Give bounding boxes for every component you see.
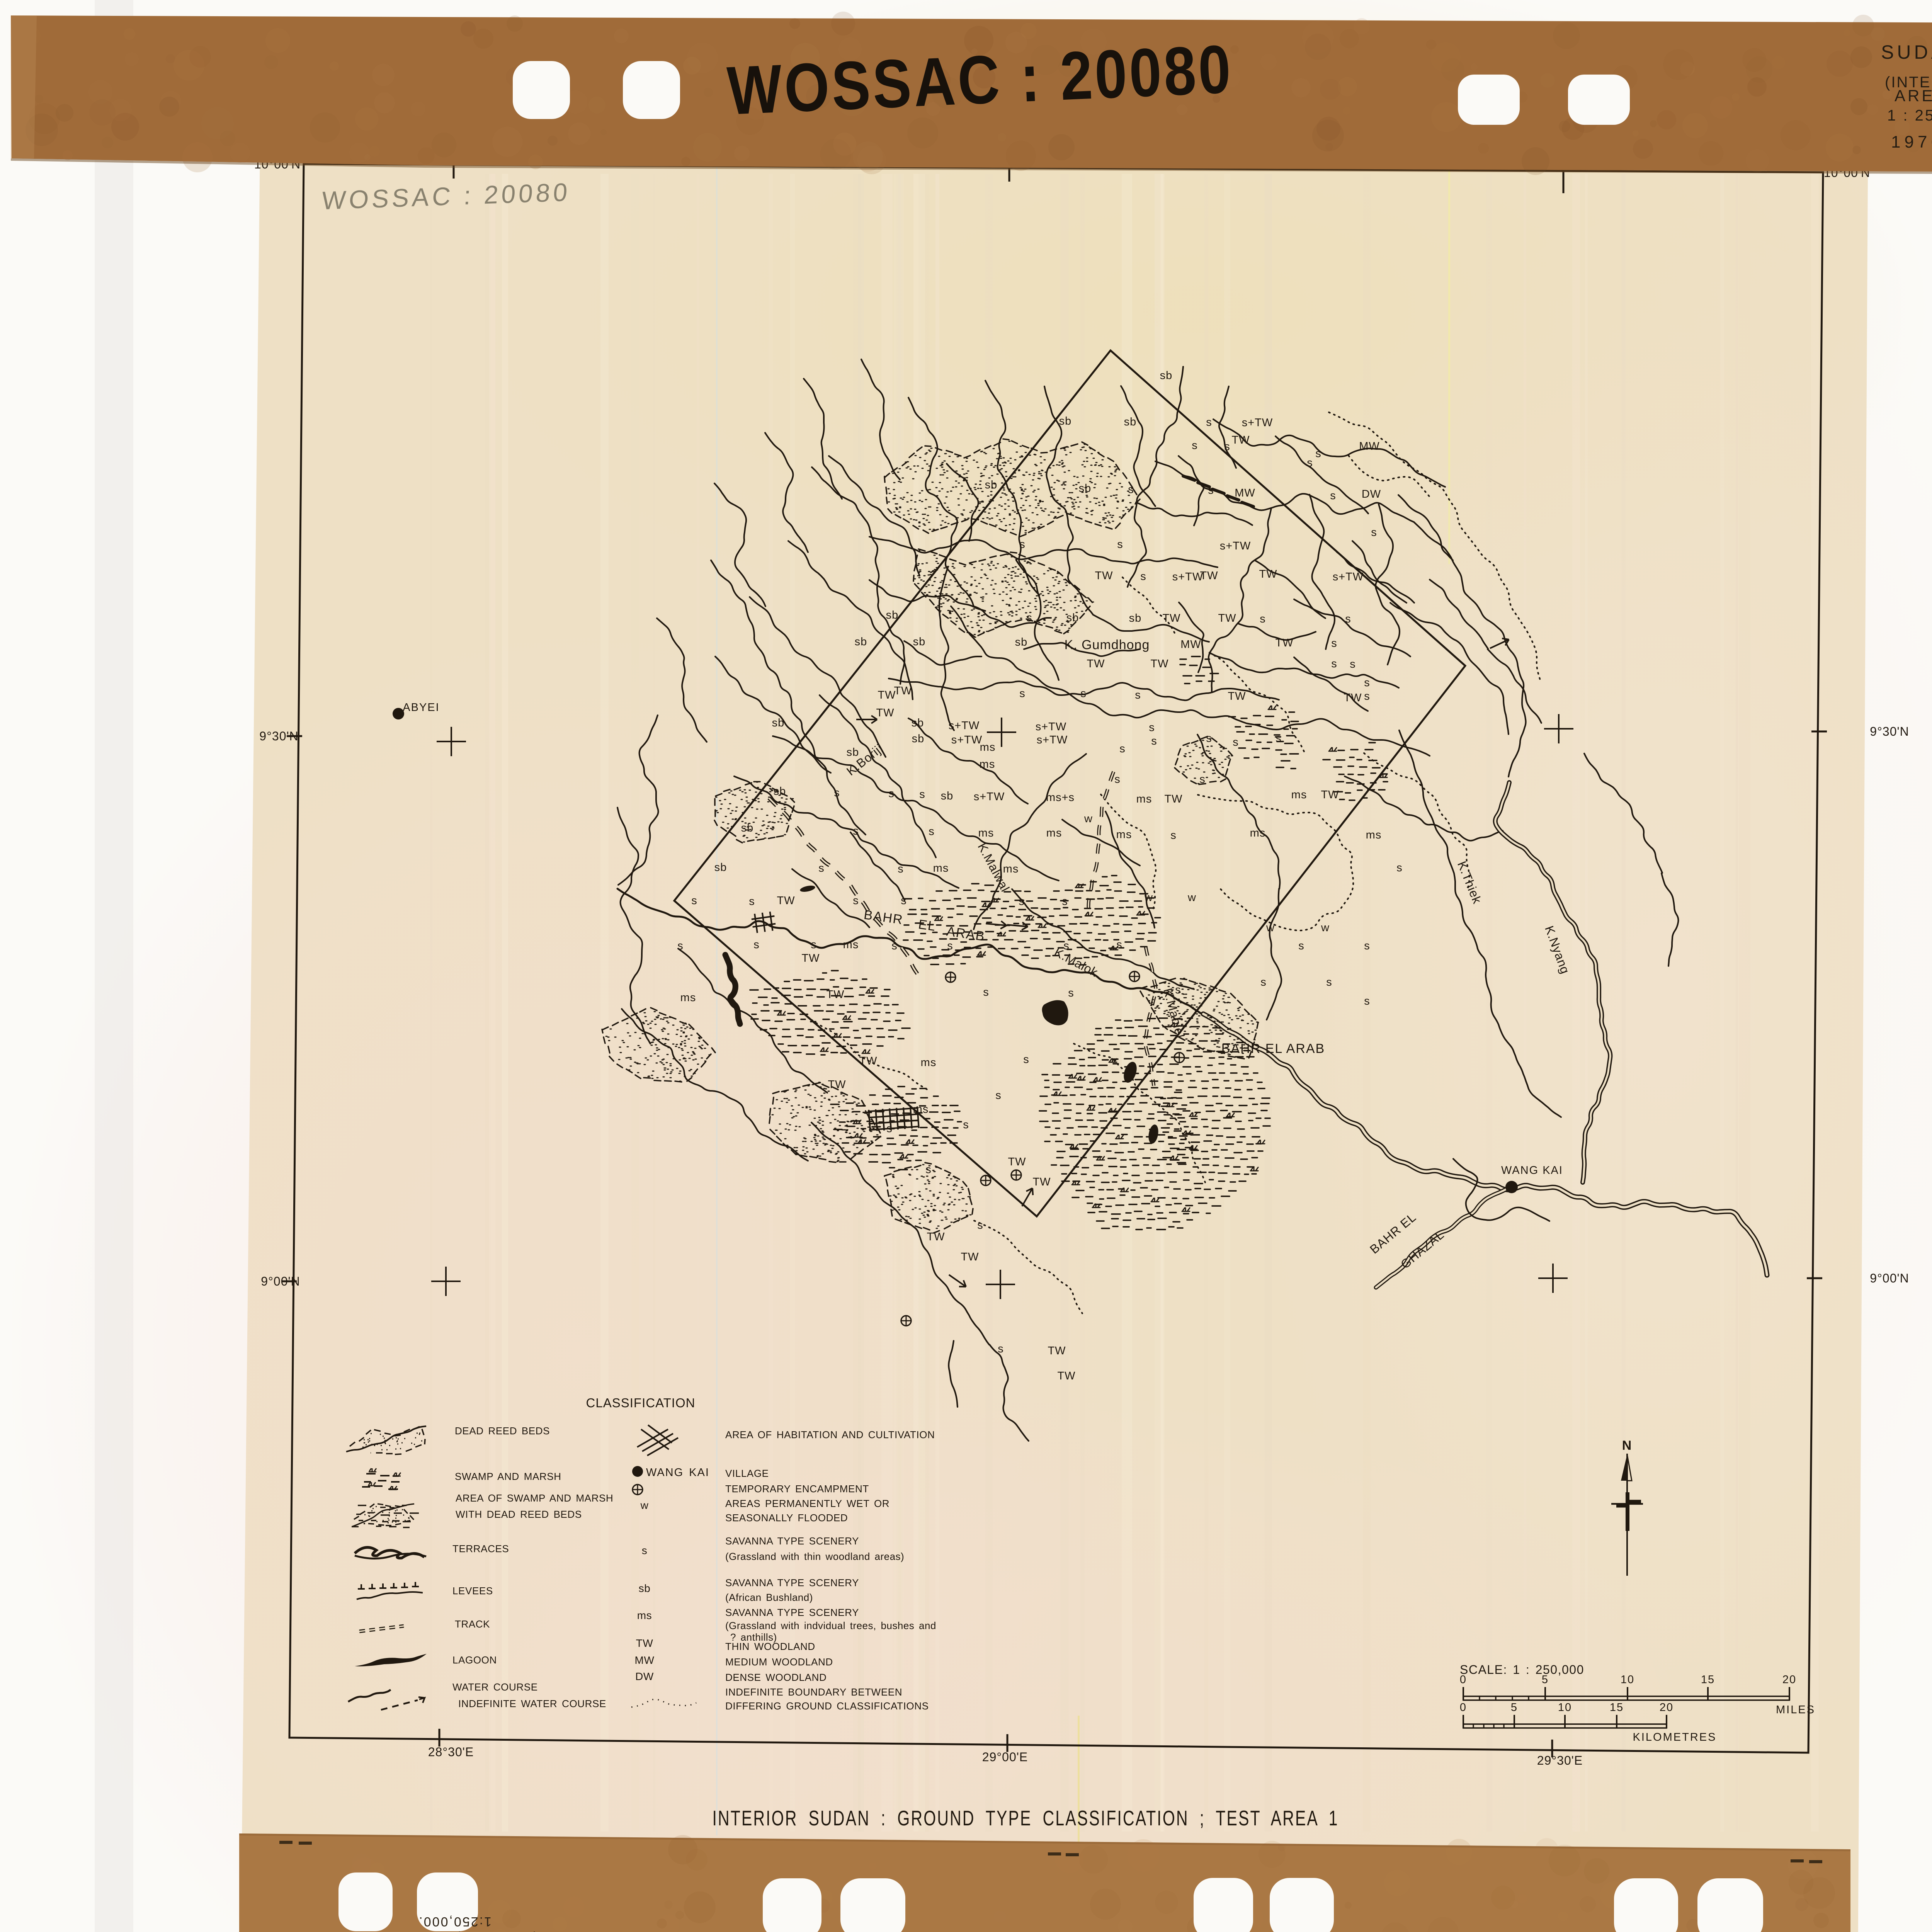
svg-text:s: s bbox=[1117, 538, 1123, 551]
svg-text:TW: TW bbox=[828, 1078, 846, 1091]
svg-text:SAVANNA TYPE SCENERY: SAVANNA TYPE SCENERY bbox=[725, 1577, 859, 1588]
svg-text:s: s bbox=[901, 895, 907, 907]
svg-text:20: 20 bbox=[1782, 1673, 1796, 1686]
svg-text:ms: ms bbox=[1116, 828, 1132, 841]
svg-text:sb: sb bbox=[1124, 416, 1137, 428]
svg-text:29°00'E: 29°00'E bbox=[982, 1750, 1028, 1764]
svg-text:MILES: MILES bbox=[1776, 1704, 1815, 1716]
svg-text:s: s bbox=[888, 787, 895, 800]
svg-text:s: s bbox=[919, 788, 925, 801]
svg-text:ms: ms bbox=[1136, 793, 1152, 805]
svg-text:sb: sb bbox=[912, 733, 925, 745]
svg-text:ms: ms bbox=[933, 862, 949, 874]
svg-text:TW: TW bbox=[1228, 690, 1246, 702]
svg-text:s: s bbox=[1350, 658, 1356, 670]
svg-text:s: s bbox=[1140, 570, 1146, 583]
svg-text:s: s bbox=[1119, 743, 1126, 755]
svg-text:s: s bbox=[929, 825, 935, 838]
svg-text:AREA 1.: AREA 1. bbox=[1895, 87, 1932, 105]
svg-text:TW: TW bbox=[1087, 658, 1105, 670]
svg-text:s: s bbox=[1345, 613, 1351, 625]
svg-text:sb: sb bbox=[639, 1582, 651, 1594]
svg-text:sb: sb bbox=[1129, 612, 1142, 624]
svg-text:ABYEI: ABYEI bbox=[403, 701, 439, 714]
svg-text:ms: ms bbox=[980, 758, 995, 770]
svg-text:s: s bbox=[1208, 484, 1214, 497]
svg-text:s+TW: s+TW bbox=[951, 734, 983, 746]
svg-text:s: s bbox=[1371, 526, 1377, 539]
svg-text:s: s bbox=[1233, 736, 1239, 748]
svg-text:INDEFINITE BOUNDARY BETWEEN: INDEFINITE BOUNDARY BETWEEN bbox=[725, 1686, 902, 1698]
svg-text:TW: TW bbox=[878, 689, 896, 701]
svg-text:s: s bbox=[1128, 483, 1134, 496]
svg-text:9°00'N: 9°00'N bbox=[261, 1274, 300, 1288]
svg-text:s+TW: s+TW bbox=[1037, 734, 1068, 746]
svg-text:THIN WOODLAND: THIN WOODLAND bbox=[725, 1641, 815, 1652]
svg-text:s: s bbox=[977, 1219, 983, 1231]
svg-text:1:250,000.: 1:250,000. bbox=[418, 1914, 492, 1929]
svg-text:s: s bbox=[1206, 416, 1212, 429]
svg-text:ms+s: ms+s bbox=[1046, 791, 1075, 804]
svg-text:s: s bbox=[1019, 895, 1025, 908]
svg-text:sb: sb bbox=[1059, 415, 1072, 427]
svg-text:s: s bbox=[1224, 440, 1230, 453]
svg-text:MEDIUM WOODLAND: MEDIUM WOODLAND bbox=[725, 1656, 833, 1668]
svg-text:ms: ms bbox=[913, 1103, 929, 1116]
svg-text:KILOMETRES: KILOMETRES bbox=[1633, 1731, 1717, 1743]
svg-text:s: s bbox=[1315, 447, 1321, 460]
svg-text:WANG KAI: WANG KAI bbox=[1501, 1164, 1563, 1177]
svg-text:w: w bbox=[1084, 813, 1093, 825]
svg-text:9°30'N: 9°30'N bbox=[259, 729, 298, 743]
svg-text:s: s bbox=[1026, 612, 1032, 624]
svg-text:s: s bbox=[898, 863, 904, 875]
svg-text:s: s bbox=[1068, 987, 1074, 999]
svg-text:s: s bbox=[834, 787, 840, 799]
svg-text:15: 15 bbox=[1701, 1673, 1715, 1686]
svg-text:sb: sb bbox=[913, 636, 926, 648]
svg-text:w: w bbox=[1144, 891, 1153, 904]
svg-text:s: s bbox=[853, 895, 859, 907]
svg-text:s: s bbox=[983, 986, 989, 998]
svg-text:DENSE WOODLAND: DENSE WOODLAND bbox=[725, 1672, 827, 1683]
svg-text:s: s bbox=[1364, 677, 1370, 689]
svg-text:0: 0 bbox=[1460, 1701, 1467, 1714]
svg-text:s: s bbox=[753, 939, 760, 951]
svg-text:s+TW: s+TW bbox=[974, 791, 1005, 803]
svg-text:ms: ms bbox=[637, 1609, 652, 1621]
svg-text:(Grassland with thin woodland: (Grassland with thin woodland areas) bbox=[725, 1551, 904, 1562]
svg-text:N: N bbox=[1622, 1438, 1632, 1453]
svg-text:ms: ms bbox=[1250, 827, 1266, 839]
svg-text:SEASONALLY FLOODED: SEASONALLY FLOODED bbox=[725, 1512, 848, 1524]
svg-text:s+TW: s+TW bbox=[1220, 540, 1251, 552]
svg-text:s: s bbox=[1149, 721, 1155, 734]
svg-text:ms: ms bbox=[980, 741, 996, 753]
svg-text:s: s bbox=[1298, 940, 1304, 952]
svg-text:DW: DW bbox=[635, 1670, 654, 1682]
svg-text:TW: TW bbox=[1057, 1370, 1075, 1382]
svg-text:29°30'E: 29°30'E bbox=[1537, 1753, 1583, 1767]
svg-text:TERRACES: TERRACES bbox=[452, 1543, 509, 1554]
svg-text:MW: MW bbox=[1235, 487, 1255, 499]
svg-text:sb: sb bbox=[772, 717, 785, 729]
svg-text:10: 10 bbox=[1558, 1701, 1572, 1714]
svg-text:DIFFERING GROUND CLASSIFICATIO: DIFFERING GROUND CLASSIFICATIONS bbox=[725, 1700, 929, 1712]
svg-text:s+TW: s+TW bbox=[949, 719, 980, 732]
svg-text:s: s bbox=[1019, 687, 1026, 700]
svg-text:s: s bbox=[1364, 940, 1370, 952]
svg-text:(African Bushland): (African Bushland) bbox=[725, 1592, 813, 1603]
svg-text:AREA OF SWAMP AND MARSH: AREA OF SWAMP AND MARSH bbox=[456, 1492, 613, 1504]
svg-text:AREAS PERMANENTLY WET OR: AREAS PERMANENTLY WET OR bbox=[725, 1498, 889, 1509]
svg-text:SAVANNA TYPE SCENERY: SAVANNA TYPE SCENERY bbox=[725, 1535, 859, 1547]
svg-text:w: w bbox=[1266, 922, 1275, 934]
svg-text:s: s bbox=[1170, 829, 1177, 842]
svg-text:TW: TW bbox=[1344, 692, 1362, 704]
svg-text:TW: TW bbox=[1164, 793, 1182, 805]
svg-text:sb: sb bbox=[774, 785, 786, 798]
svg-text:LAGOON: LAGOON bbox=[452, 1654, 497, 1666]
svg-text:w: w bbox=[1187, 891, 1196, 904]
svg-text:sb: sb bbox=[741, 822, 754, 834]
svg-text:sb: sb bbox=[1160, 369, 1173, 382]
svg-text:sb: sb bbox=[1066, 612, 1079, 624]
svg-text:sb: sb bbox=[855, 636, 867, 648]
svg-text:20: 20 bbox=[1660, 1701, 1673, 1714]
svg-text:s: s bbox=[925, 1163, 932, 1176]
svg-text:WATER COURSE: WATER COURSE bbox=[452, 1681, 538, 1693]
svg-text:s: s bbox=[677, 940, 684, 952]
svg-text:LEVEES: LEVEES bbox=[452, 1585, 493, 1597]
svg-text:s: s bbox=[1396, 862, 1403, 874]
svg-text:s: s bbox=[1023, 1053, 1029, 1066]
svg-text:s: s bbox=[1276, 732, 1282, 745]
svg-text:SAVANNA TYPE SCENERY: SAVANNA TYPE SCENERY bbox=[725, 1607, 859, 1618]
svg-text:s: s bbox=[1331, 658, 1337, 670]
svg-text:s: s bbox=[1364, 690, 1370, 702]
svg-text:15: 15 bbox=[1610, 1701, 1624, 1714]
svg-text:s: s bbox=[1116, 939, 1122, 951]
svg-text:1 : 250,000: 1 : 250,000 bbox=[1887, 107, 1932, 124]
svg-text:TW: TW bbox=[876, 707, 894, 719]
svg-text:s: s bbox=[853, 825, 859, 837]
svg-text:TW: TW bbox=[927, 1231, 945, 1243]
svg-text:EL: EL bbox=[917, 917, 937, 934]
svg-text:MW: MW bbox=[635, 1654, 655, 1666]
svg-text:TW: TW bbox=[1275, 637, 1293, 649]
svg-text:s: s bbox=[1206, 732, 1212, 745]
svg-text:s: s bbox=[749, 895, 755, 908]
svg-text:5: 5 bbox=[1542, 1673, 1549, 1686]
svg-text:TW: TW bbox=[1218, 612, 1236, 624]
svg-text:WITH DEAD REED BEDS: WITH DEAD REED BEDS bbox=[456, 1509, 582, 1520]
svg-text:CLASSIFICATION: CLASSIFICATION bbox=[586, 1396, 696, 1410]
svg-text:TW: TW bbox=[894, 685, 912, 697]
svg-text:s: s bbox=[1260, 976, 1267, 988]
svg-text:9°00'N: 9°00'N bbox=[1870, 1271, 1909, 1285]
svg-text:28°30'E: 28°30'E bbox=[428, 1745, 474, 1759]
svg-text:s: s bbox=[963, 1119, 969, 1131]
svg-text:SWAMP AND MARSH: SWAMP AND MARSH bbox=[455, 1471, 561, 1482]
svg-text:sb: sb bbox=[1079, 482, 1092, 495]
svg-text:BAHR EL ARAB: BAHR EL ARAB bbox=[1221, 1041, 1325, 1056]
svg-text:TW: TW bbox=[1095, 570, 1113, 582]
svg-text:ms: ms bbox=[1046, 827, 1062, 839]
svg-text:s: s bbox=[1019, 538, 1026, 551]
svg-text:s+TW: s+TW bbox=[1242, 417, 1273, 429]
svg-text:ms: ms bbox=[978, 827, 994, 839]
svg-text:TW: TW bbox=[1032, 1176, 1051, 1188]
svg-text:s: s bbox=[995, 1089, 1002, 1102]
svg-text:sb: sb bbox=[847, 746, 859, 759]
svg-text:s: s bbox=[818, 862, 825, 874]
svg-text:s: s bbox=[1135, 689, 1141, 701]
svg-text:s: s bbox=[1151, 735, 1157, 747]
svg-text:TW: TW bbox=[1048, 1345, 1066, 1357]
svg-text:TRACK: TRACK bbox=[455, 1618, 490, 1630]
svg-text:s+TW: s+TW bbox=[1036, 721, 1067, 733]
svg-text:TW: TW bbox=[1150, 658, 1168, 670]
svg-text:w: w bbox=[640, 1499, 649, 1511]
svg-text:s: s bbox=[1080, 687, 1087, 700]
svg-text:SCALE: 1 : 250,000: SCALE: 1 : 250,000 bbox=[1460, 1663, 1584, 1677]
svg-text:9°30'N: 9°30'N bbox=[1870, 724, 1909, 738]
svg-text:TW: TW bbox=[1200, 570, 1218, 582]
svg-text:sb: sb bbox=[886, 609, 899, 621]
svg-text:s: s bbox=[1063, 940, 1070, 952]
svg-text:INTERIOR SUDAN : GROUND TYPE C: INTERIOR SUDAN : GROUND TYPE CLASSIFICAT… bbox=[712, 1806, 1338, 1830]
svg-text:s: s bbox=[1330, 490, 1336, 502]
svg-text:TEMPORARY ENCAMPMENT: TEMPORARY ENCAMPMENT bbox=[725, 1483, 869, 1495]
svg-text:TW: TW bbox=[826, 988, 844, 1001]
svg-text:MW: MW bbox=[1359, 440, 1380, 452]
svg-text:TW: TW bbox=[777, 895, 795, 907]
svg-text:TW: TW bbox=[636, 1637, 653, 1649]
svg-text:MW: MW bbox=[1180, 638, 1201, 651]
svg-text:AREA OF HABITATION AND CULTIVA: AREA OF HABITATION AND CULTIVATION bbox=[725, 1429, 935, 1440]
svg-text:(Grassland with indvidual tree: (Grassland with indvidual trees, bushes … bbox=[725, 1620, 936, 1631]
svg-text:sb: sb bbox=[714, 861, 727, 874]
svg-text:s: s bbox=[1175, 984, 1181, 996]
svg-text:s: s bbox=[891, 940, 898, 952]
svg-text:TW: TW bbox=[859, 1055, 877, 1067]
svg-text:ms: ms bbox=[843, 939, 859, 951]
svg-text:s: s bbox=[1114, 773, 1121, 786]
svg-text:sb: sb bbox=[912, 717, 924, 729]
svg-text:s: s bbox=[1307, 457, 1313, 469]
svg-text:VILLAGE: VILLAGE bbox=[725, 1468, 769, 1479]
svg-text:ms: ms bbox=[1366, 829, 1382, 841]
svg-text:TW: TW bbox=[1008, 1156, 1026, 1168]
svg-text:1976.: 1976. bbox=[1891, 133, 1932, 151]
svg-text:s: s bbox=[1260, 613, 1266, 625]
svg-text:DEAD REED BEDS: DEAD REED BEDS bbox=[455, 1425, 550, 1437]
svg-text:ms: ms bbox=[1291, 789, 1307, 801]
svg-text:ms: ms bbox=[680, 992, 696, 1004]
svg-text:0: 0 bbox=[1460, 1673, 1467, 1686]
svg-text:s: s bbox=[691, 895, 697, 907]
svg-text:TW: TW bbox=[1231, 434, 1250, 446]
svg-text:s: s bbox=[1364, 995, 1370, 1007]
svg-text:s+TW: s+TW bbox=[1333, 571, 1364, 583]
svg-text:TW: TW bbox=[801, 952, 820, 964]
svg-text:5: 5 bbox=[1511, 1701, 1518, 1714]
svg-text:w: w bbox=[1321, 922, 1330, 934]
svg-text:s: s bbox=[886, 1122, 893, 1135]
svg-text:INDEFINITE WATER COURSE: INDEFINITE WATER COURSE bbox=[458, 1698, 606, 1709]
svg-text:s+TW: s+TW bbox=[1172, 571, 1204, 583]
svg-text:TW: TW bbox=[1259, 568, 1277, 580]
svg-text:TW: TW bbox=[1321, 789, 1339, 801]
svg-text:sb: sb bbox=[1015, 636, 1028, 648]
svg-text:s: s bbox=[947, 940, 953, 952]
svg-text:s: s bbox=[998, 1343, 1004, 1355]
svg-text:s: s bbox=[1192, 439, 1198, 452]
svg-text:s: s bbox=[1062, 895, 1068, 908]
svg-text:s: s bbox=[1199, 773, 1206, 786]
svg-text:ms: ms bbox=[1003, 863, 1019, 875]
svg-text:s: s bbox=[811, 939, 817, 951]
svg-text:sb: sb bbox=[941, 790, 954, 802]
svg-text:DW: DW bbox=[1362, 488, 1381, 500]
svg-text:TW: TW bbox=[1162, 612, 1180, 624]
svg-text:SUDAN -: SUDAN - bbox=[1881, 41, 1932, 63]
svg-text:ms: ms bbox=[921, 1056, 937, 1069]
svg-text:10: 10 bbox=[1621, 1673, 1634, 1686]
svg-text:s: s bbox=[642, 1544, 648, 1556]
svg-text:K. Gumdhong: K. Gumdhong bbox=[1065, 638, 1150, 652]
svg-text:s: s bbox=[1331, 637, 1337, 650]
svg-text:TW: TW bbox=[961, 1251, 979, 1263]
svg-text:WANG KAI: WANG KAI bbox=[646, 1466, 709, 1479]
svg-text:s: s bbox=[1326, 976, 1332, 988]
svg-text:sb: sb bbox=[985, 479, 998, 491]
